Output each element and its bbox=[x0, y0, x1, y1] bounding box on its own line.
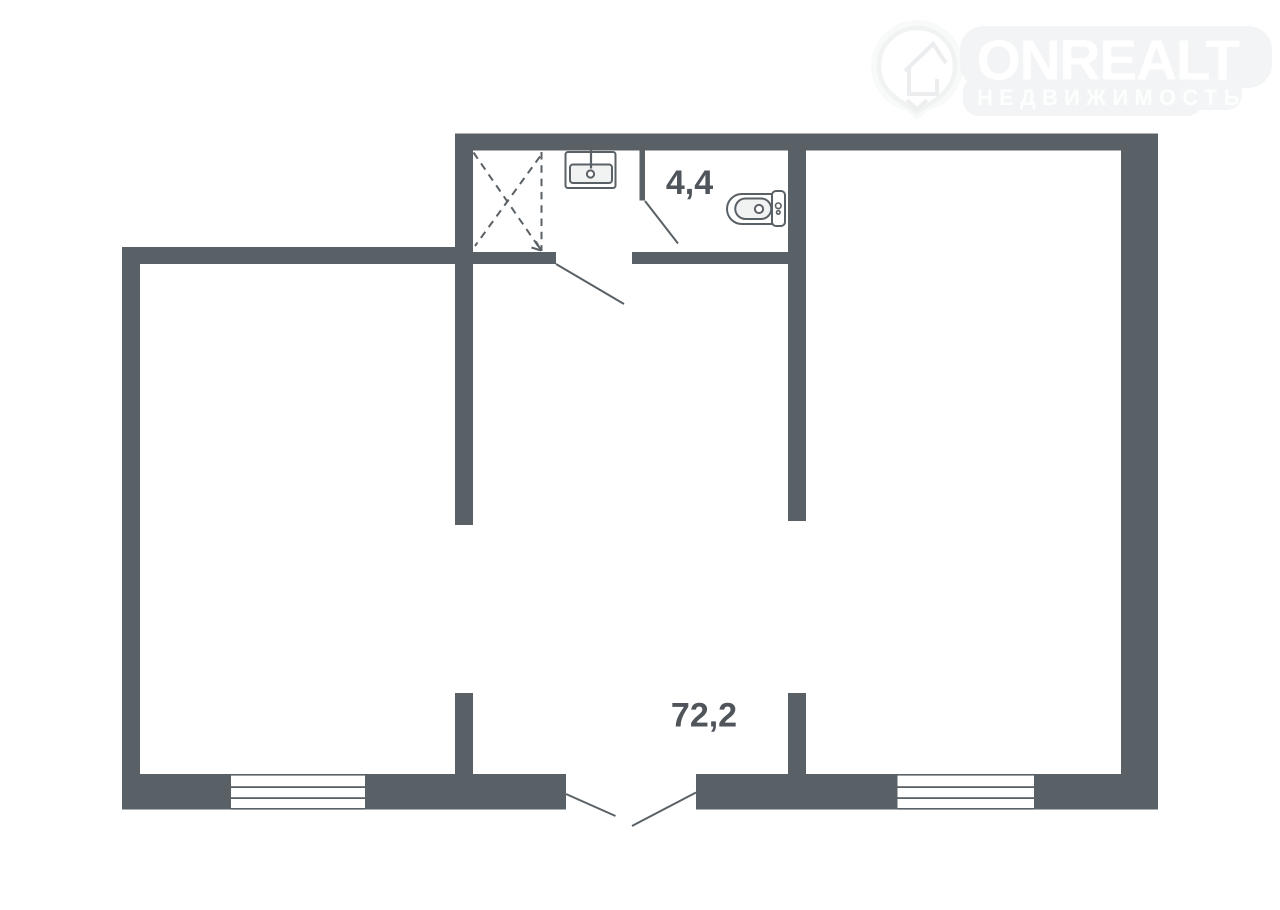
svg-text:НЕДВИЖИМОСТЬ: НЕДВИЖИМОСТЬ bbox=[977, 85, 1246, 110]
svg-text:72,2: 72,2 bbox=[671, 697, 737, 735]
svg-text:4,4: 4,4 bbox=[666, 164, 713, 202]
svg-text:ONREALT: ONREALT bbox=[977, 29, 1241, 93]
